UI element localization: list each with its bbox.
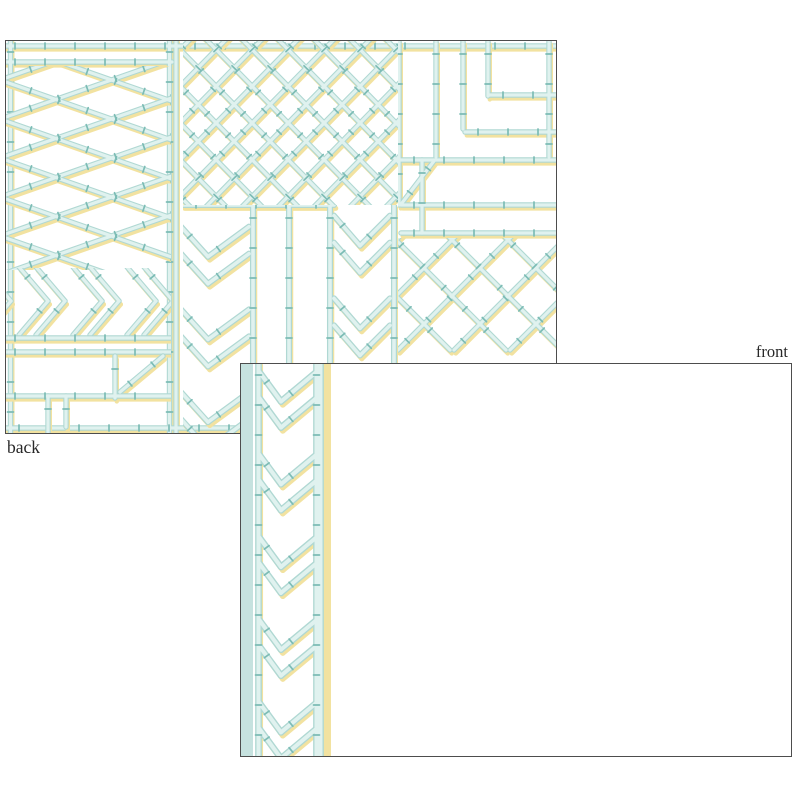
svg-text:front: front — [756, 342, 788, 361]
svg-text:back: back — [7, 437, 40, 457]
